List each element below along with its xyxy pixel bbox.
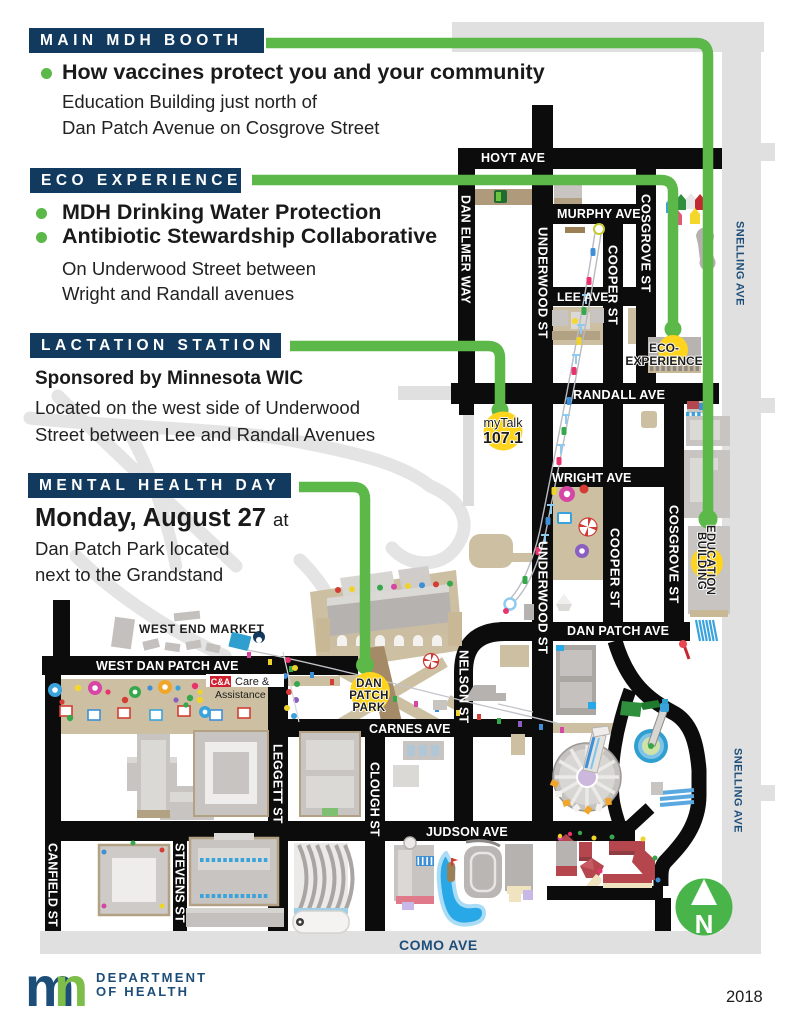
svg-text:SNELLING AVE: SNELLING AVE (733, 221, 745, 306)
svg-text:PARK: PARK (353, 702, 386, 714)
svg-text:CARNES AVE: CARNES AVE (369, 722, 451, 736)
svg-text:COSGROVE ST: COSGROVE ST (666, 505, 681, 604)
svg-text:COOPER ST: COOPER ST (607, 528, 622, 608)
svg-text:RANDALL AVE: RANDALL AVE (573, 387, 666, 402)
svg-text:COOPER ST: COOPER ST (605, 245, 620, 325)
svg-text:C&A: C&A (211, 677, 231, 687)
svg-text:Care &: Care & (235, 676, 270, 688)
svg-text:Assistance: Assistance (215, 689, 266, 701)
svg-text:UNDERWOOD ST: UNDERWOOD ST (535, 541, 550, 654)
svg-text:DAN: DAN (356, 678, 382, 690)
svg-text:CANFIELD ST: CANFIELD ST (45, 843, 59, 927)
svg-text:n: n (54, 965, 88, 1013)
svg-text:N: N (695, 909, 714, 939)
svg-text:SNELLING AVE: SNELLING AVE (731, 748, 743, 833)
svg-text:HOYT AVE: HOYT AVE (481, 151, 545, 165)
svg-text:CLOUGH ST: CLOUGH ST (367, 762, 381, 837)
svg-text:BUILDING: BUILDING (695, 532, 707, 590)
svg-text:WRIGHT AVE: WRIGHT AVE (552, 471, 631, 485)
svg-text:JUDSON AVE: JUDSON AVE (426, 825, 508, 839)
svg-text:NELSON ST: NELSON ST (456, 650, 470, 723)
svg-text:LEGGETT ST: LEGGETT ST (270, 744, 284, 824)
svg-text:UNDERWOOD ST: UNDERWOOD ST (535, 227, 550, 339)
svg-text:STEVENS ST: STEVENS ST (172, 843, 186, 923)
svg-text:WEST DAN PATCH AVE: WEST DAN PATCH AVE (96, 659, 239, 673)
svg-text:LEE AVE: LEE AVE (557, 290, 609, 304)
svg-text:PATCH: PATCH (349, 690, 388, 702)
svg-text:WEST END MARKET: WEST END MARKET (139, 622, 265, 636)
svg-text:EXPERIENCE: EXPERIENCE (625, 354, 702, 368)
svg-text:COSGROVE ST: COSGROVE ST (638, 194, 653, 293)
svg-text:DAN ELMER WAY: DAN ELMER WAY (458, 195, 472, 304)
svg-text:COMO AVE: COMO AVE (399, 937, 478, 953)
svg-text:DAN PATCH AVE: DAN PATCH AVE (567, 624, 669, 638)
svg-text:107.1: 107.1 (483, 430, 523, 447)
svg-text:ECO-: ECO- (649, 341, 679, 355)
svg-text:myTalk: myTalk (484, 416, 524, 430)
svg-text:MURPHY AVE: MURPHY AVE (557, 207, 641, 221)
